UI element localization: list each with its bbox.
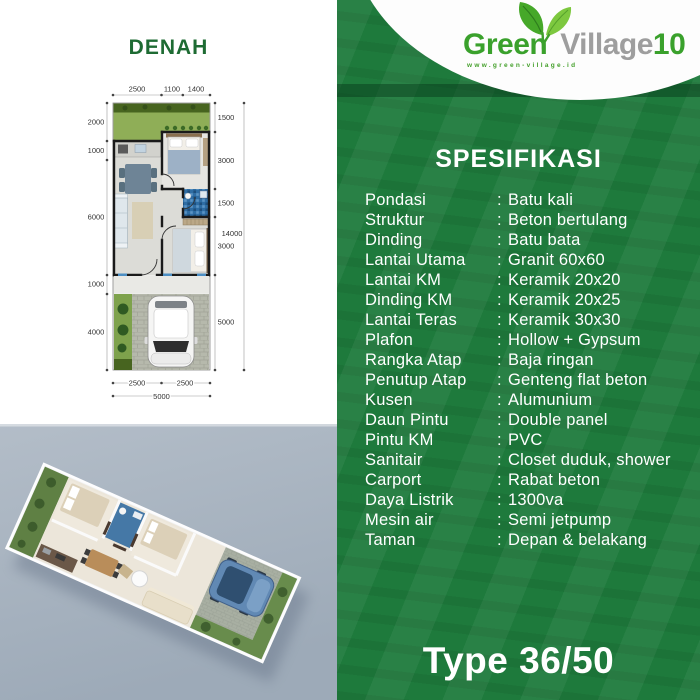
- spec-row: Mesin air : Semi jetpump: [365, 510, 695, 530]
- spec-colon: :: [497, 431, 508, 450]
- svg-text:1000: 1000: [88, 146, 105, 155]
- spec-value: Batu kali: [508, 191, 573, 210]
- type-label: Type 36/50: [337, 640, 700, 682]
- spec-row: Lantai Teras : Keramik 30x30: [365, 310, 695, 330]
- spec-label: Struktur: [365, 211, 497, 230]
- spec-colon: :: [497, 471, 508, 490]
- spec-label: Rangka Atap: [365, 351, 497, 370]
- brand-name-village: Village: [560, 28, 653, 61]
- spec-label: Dinding: [365, 231, 497, 250]
- spec-list: Pondasi : Batu kali Struktur : Beton ber…: [365, 190, 695, 550]
- svg-text:14000: 14000: [222, 229, 243, 238]
- house-3d-render: [0, 424, 337, 700]
- spec-row: Pintu KM : PVC: [365, 430, 695, 450]
- svg-text:6000: 6000: [88, 213, 105, 222]
- spec-colon: :: [497, 411, 508, 430]
- spec-value: Rabat beton: [508, 471, 600, 490]
- spec-row: Carport : Rabat beton: [365, 470, 695, 490]
- spec-label: Sanitair: [365, 451, 497, 470]
- brand-name: GreenVillage10: [463, 28, 685, 62]
- spec-colon: :: [497, 371, 508, 390]
- spec-value: Baja ringan: [508, 351, 594, 370]
- spec-colon: :: [497, 291, 508, 310]
- spec-row: Daun Pintu : Double panel: [365, 410, 695, 430]
- svg-text:5000: 5000: [218, 318, 235, 327]
- svg-text:2500: 2500: [177, 379, 194, 388]
- floor-plan: 2500 1100 1400 2000 1000 6000 1000 4000 …: [85, 76, 320, 410]
- spec-value: Hollow + Gypsum: [508, 331, 641, 350]
- car-top-view: [145, 296, 198, 367]
- spec-colon: :: [497, 511, 508, 530]
- spec-value: 1300va: [508, 491, 563, 510]
- spec-row: Lantai Utama : Granit 60x60: [365, 250, 695, 270]
- spec-label: Pintu KM: [365, 431, 497, 450]
- svg-text:2500: 2500: [129, 379, 146, 388]
- spec-label: Carport: [365, 471, 497, 490]
- spec-value: Keramik 20x20: [508, 271, 621, 290]
- spec-row: Struktur : Beton bertulang: [365, 210, 695, 230]
- spec-colon: :: [497, 211, 508, 230]
- spec-colon: :: [497, 271, 508, 290]
- spec-label: Daya Listrik: [365, 491, 497, 510]
- left-panel: DENAH: [0, 0, 337, 700]
- spec-value: Double panel: [508, 411, 608, 430]
- spec-label: Lantai KM: [365, 271, 497, 290]
- spec-colon: :: [497, 451, 508, 470]
- spec-row: Pondasi : Batu kali: [365, 190, 695, 210]
- spec-label: Pondasi: [365, 191, 497, 210]
- svg-text:5000: 5000: [153, 392, 170, 401]
- spec-value: Keramik 20x25: [508, 291, 621, 310]
- terrace: [114, 276, 209, 293]
- spec-value: Granit 60x60: [508, 251, 605, 270]
- spec-row: Daya Listrik : 1300va: [365, 490, 695, 510]
- svg-text:1000: 1000: [88, 280, 105, 289]
- spec-label: Mesin air: [365, 511, 497, 530]
- spec-label: Daun Pintu: [365, 411, 497, 430]
- brand-logo: GreenVillage10 www.green-village.id: [445, 2, 695, 78]
- spec-label: Plafon: [365, 331, 497, 350]
- spec-value: Alumunium: [508, 391, 592, 410]
- spec-value: Depan & belakang: [508, 531, 647, 550]
- svg-text:3000: 3000: [218, 242, 235, 251]
- svg-text:1100: 1100: [164, 85, 180, 94]
- spec-colon: :: [497, 311, 508, 330]
- svg-text:2000: 2000: [88, 118, 105, 127]
- spec-value: Keramik 30x30: [508, 311, 621, 330]
- svg-text:2500: 2500: [129, 85, 146, 94]
- spec-colon: :: [497, 491, 508, 510]
- wardrobe: [203, 138, 208, 166]
- spec-label: Lantai Teras: [365, 311, 497, 330]
- spec-row: Lantai KM : Keramik 20x20: [365, 270, 695, 290]
- spec-colon: :: [497, 231, 508, 250]
- spec-label: Dinding KM: [365, 291, 497, 310]
- bathroom: [183, 189, 209, 217]
- svg-text:4000: 4000: [88, 328, 105, 337]
- spec-value: Batu bata: [508, 231, 580, 250]
- spec-row: Rangka Atap : Baja ringan: [365, 350, 695, 370]
- spec-value: Closet duduk, shower: [508, 451, 671, 470]
- spec-colon: :: [497, 251, 508, 270]
- spec-colon: :: [497, 351, 508, 370]
- spec-colon: :: [497, 531, 508, 550]
- floor-plan-title: DENAH: [0, 36, 337, 60]
- spec-row: Taman : Depan & belakang: [365, 530, 695, 550]
- svg-text:1500: 1500: [218, 113, 235, 122]
- spec-value: Beton bertulang: [508, 211, 628, 230]
- brand-name-green: Green: [463, 28, 547, 61]
- spec-row: Kusen : Alumunium: [365, 390, 695, 410]
- kitchen-counter: [115, 142, 161, 157]
- rug: [132, 202, 153, 239]
- bedroom-1: [162, 126, 209, 189]
- spec-row: Sanitair : Closet duduk, shower: [365, 450, 695, 470]
- spec-colon: :: [497, 391, 508, 410]
- spec-value: PVC: [508, 431, 543, 450]
- spec-row: Plafon : Hollow + Gypsum: [365, 330, 695, 350]
- spec-label: Taman: [365, 531, 497, 550]
- spec-label: Penutup Atap: [365, 371, 497, 390]
- spec-value: Semi jetpump: [508, 511, 611, 530]
- specs-heading: SPESIFIKASI: [337, 145, 700, 174]
- svg-text:3000: 3000: [218, 156, 235, 165]
- spec-label: Kusen: [365, 391, 497, 410]
- flyer-page: DENAH: [0, 0, 700, 700]
- svg-text:1400: 1400: [188, 85, 205, 94]
- front-garden: [114, 294, 132, 370]
- brand-website: www.green-village.id: [467, 62, 577, 69]
- brand-name-number: 10: [653, 28, 685, 61]
- spec-colon: :: [497, 191, 508, 210]
- spec-colon: :: [497, 331, 508, 350]
- spec-value: Genteng flat beton: [508, 371, 647, 390]
- spec-row: Dinding : Batu bata: [365, 230, 695, 250]
- svg-text:1500: 1500: [218, 199, 235, 208]
- spec-label: Lantai Utama: [365, 251, 497, 270]
- spec-row: Dinding KM : Keramik 20x25: [365, 290, 695, 310]
- spec-row: Penutup Atap : Genteng flat beton: [365, 370, 695, 390]
- spec-panel: GreenVillage10 www.green-village.id SPES…: [337, 0, 700, 700]
